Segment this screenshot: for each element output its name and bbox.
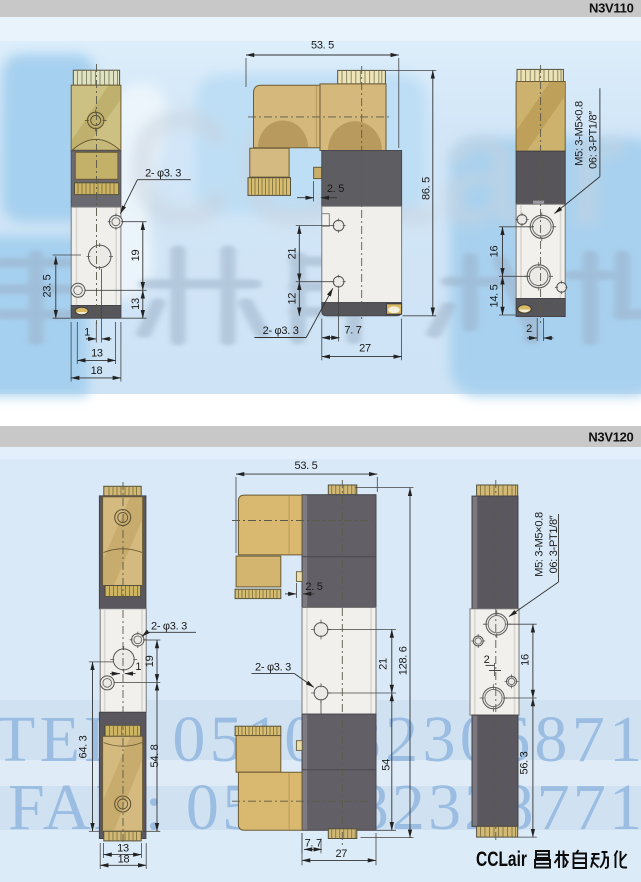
svg-text:19: 19 — [144, 655, 156, 667]
svg-text:N3V120: N3V120 — [588, 430, 633, 445]
svg-text:12: 12 — [286, 293, 298, 305]
svg-text:M5: 3-M5×0.8: M5: 3-M5×0.8 — [533, 512, 545, 577]
svg-text:14. 5: 14. 5 — [489, 284, 501, 307]
svg-text:86. 5: 86. 5 — [421, 177, 433, 200]
svg-text:2- φ3. 3: 2- φ3. 3 — [145, 168, 181, 180]
svg-text:18: 18 — [118, 854, 130, 866]
svg-text:54: 54 — [380, 759, 392, 771]
svg-text:23. 5: 23. 5 — [42, 274, 54, 297]
svg-text:54. 8: 54. 8 — [149, 744, 161, 767]
svg-text:27: 27 — [335, 848, 347, 860]
svg-text:2: 2 — [484, 654, 490, 666]
svg-text:21: 21 — [378, 658, 390, 670]
svg-text:06: 3-PT1/8″: 06: 3-PT1/8″ — [548, 515, 560, 573]
svg-text:1: 1 — [135, 661, 141, 673]
svg-text:18: 18 — [91, 365, 103, 377]
svg-text:2- φ3. 3: 2- φ3. 3 — [263, 325, 299, 337]
svg-text:2. 5: 2. 5 — [327, 183, 344, 195]
svg-text:2: 2 — [526, 323, 532, 335]
svg-text:53. 5: 53. 5 — [311, 40, 334, 52]
svg-text:2. 5: 2. 5 — [305, 581, 322, 593]
svg-text:7. 7: 7. 7 — [305, 838, 322, 850]
svg-text:16: 16 — [520, 654, 532, 666]
svg-text:2- φ3. 3: 2- φ3. 3 — [255, 661, 291, 673]
svg-text:19: 19 — [130, 250, 142, 262]
svg-text:27: 27 — [359, 343, 371, 355]
svg-text:M5: 3-M5×0.8: M5: 3-M5×0.8 — [574, 101, 586, 166]
svg-text:13: 13 — [130, 298, 142, 310]
svg-text:56. 3: 56. 3 — [519, 751, 531, 774]
svg-text:64. 3: 64. 3 — [78, 735, 90, 758]
svg-text:13: 13 — [91, 348, 103, 360]
svg-text:21: 21 — [286, 248, 298, 260]
svg-text:CCLair: CCLair — [476, 847, 527, 871]
svg-text:53. 5: 53. 5 — [295, 460, 318, 472]
svg-text:7. 7: 7. 7 — [344, 325, 361, 337]
svg-text:128. 6: 128. 6 — [398, 646, 410, 675]
svg-text:1: 1 — [84, 327, 90, 339]
svg-text:N3V110: N3V110 — [589, 1, 634, 16]
svg-text:06: 3-PT1/8″: 06: 3-PT1/8″ — [588, 111, 600, 169]
svg-text:2- φ3. 3: 2- φ3. 3 — [151, 621, 187, 633]
svg-text:16: 16 — [489, 246, 501, 258]
